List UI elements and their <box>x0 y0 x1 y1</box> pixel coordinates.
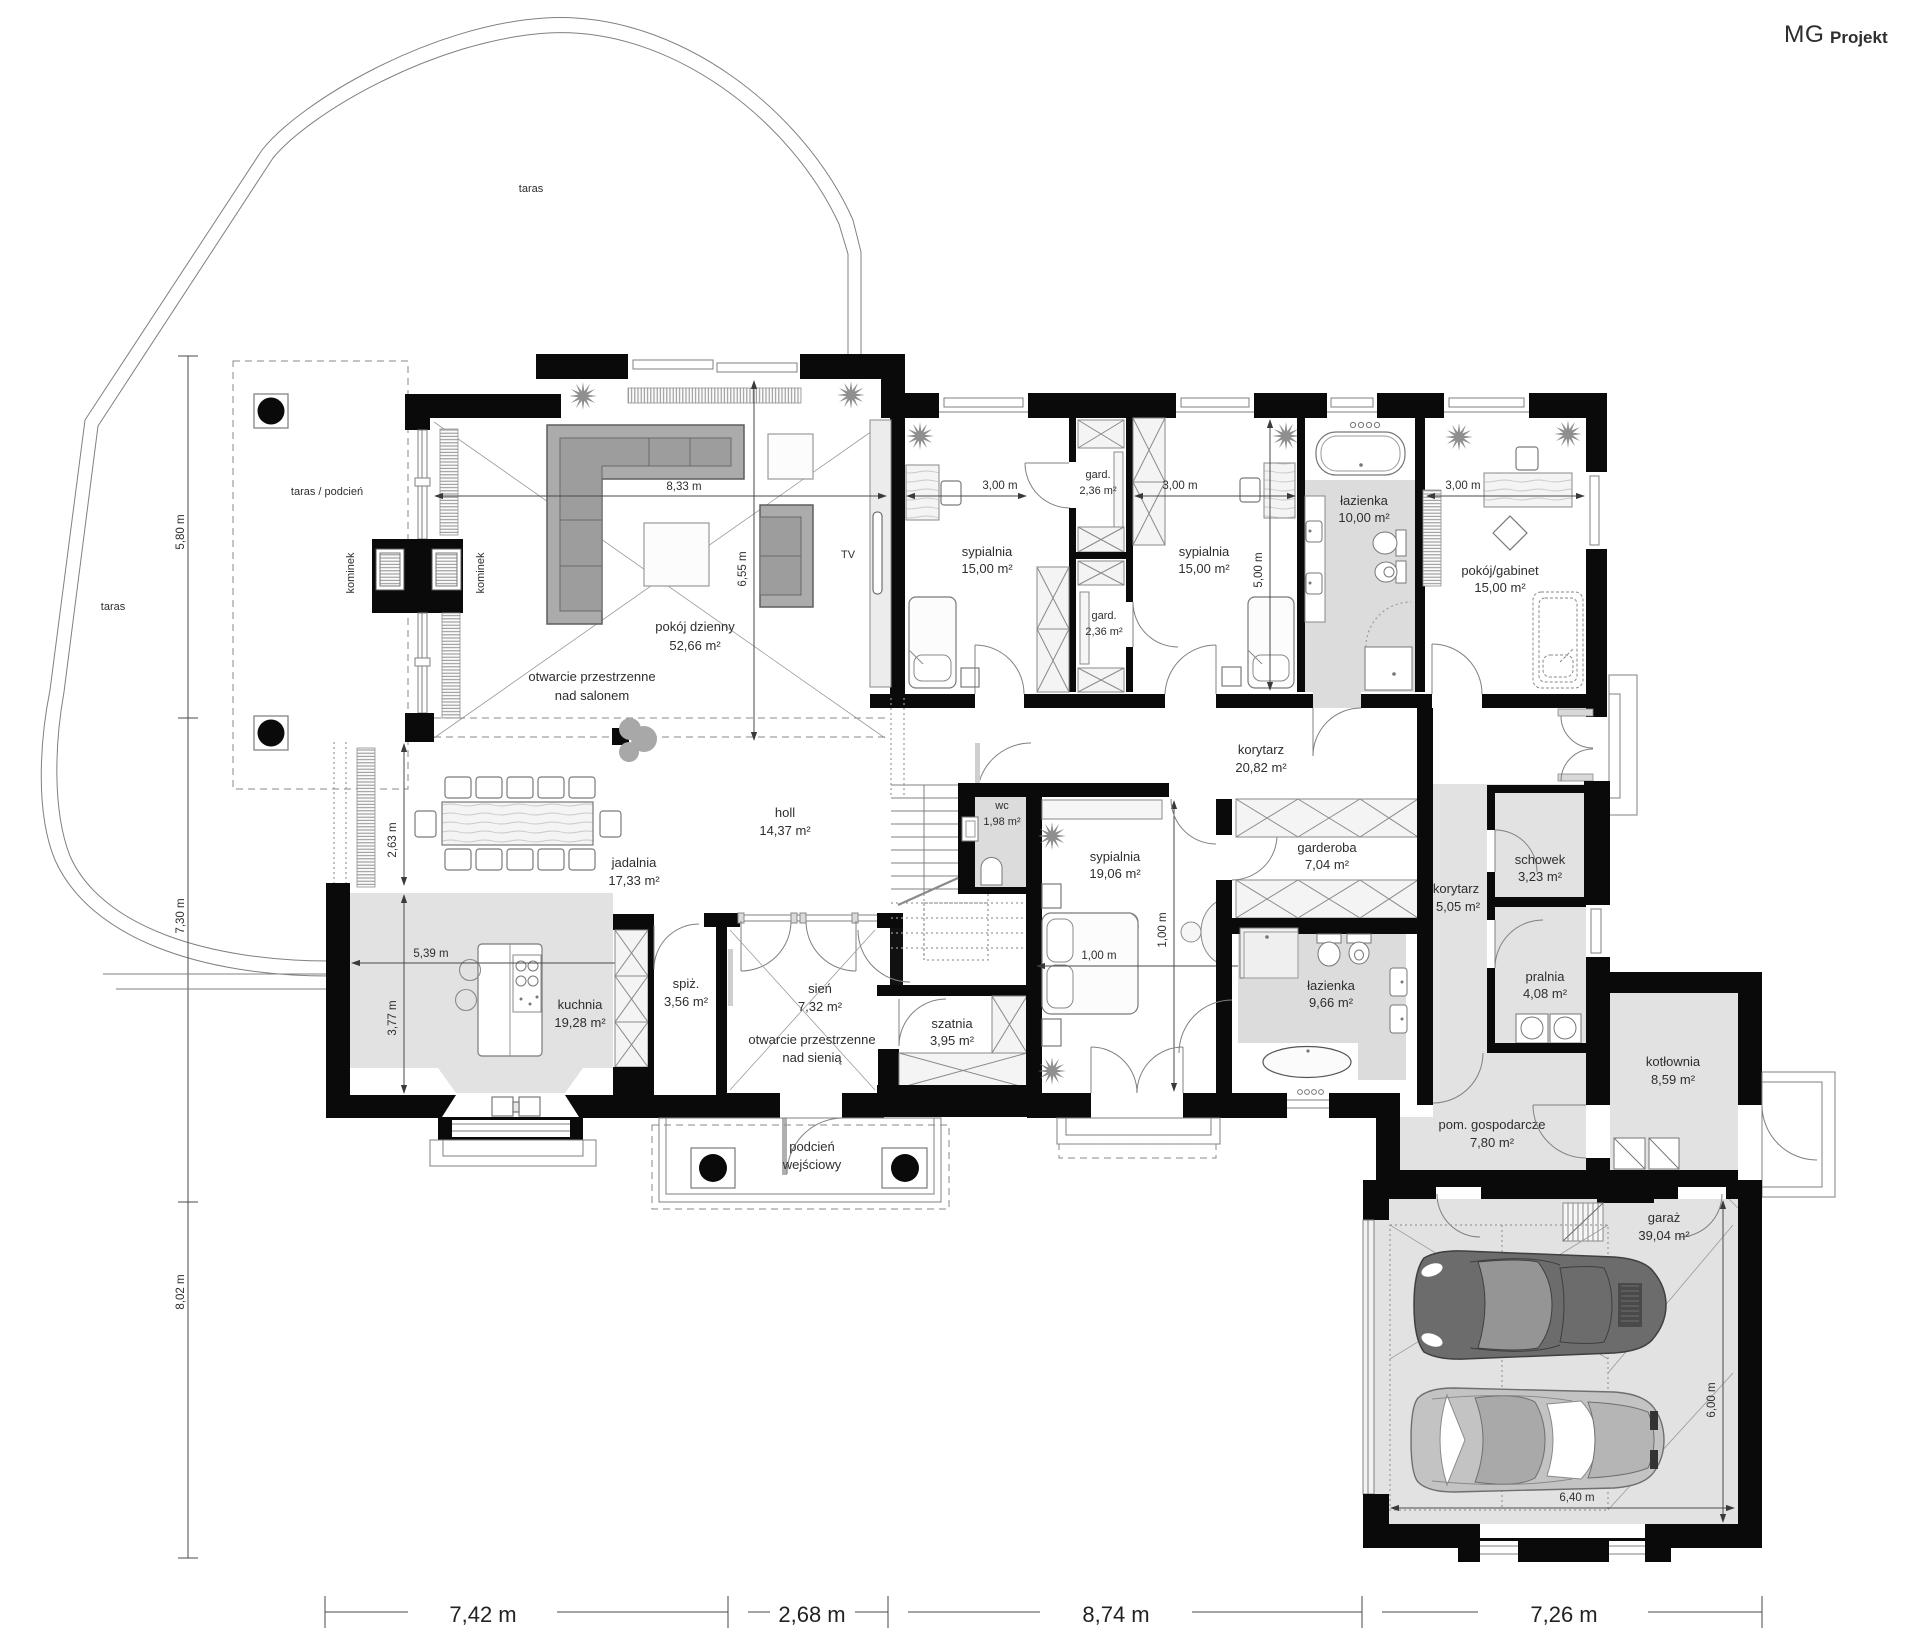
svg-text:taras: taras <box>101 601 126 613</box>
svg-text:pokój dzienny: pokój dzienny <box>655 619 735 634</box>
svg-text:1,00 m: 1,00 m <box>1157 912 1169 947</box>
svg-text:holl: holl <box>775 805 795 820</box>
svg-text:MG: MG <box>1784 21 1824 48</box>
svg-text:sypialnia: sypialnia <box>962 544 1013 559</box>
svg-text:8,02 m: 8,02 m <box>175 1274 187 1309</box>
svg-text:podcień: podcień <box>789 1139 835 1154</box>
svg-text:sypialnia: sypialnia <box>1090 849 1141 864</box>
svg-text:gard.: gard. <box>1085 469 1110 481</box>
svg-text:6,40 m: 6,40 m <box>1559 1492 1594 1504</box>
svg-text:jadalnia: jadalnia <box>611 855 658 870</box>
svg-text:15,00 m²: 15,00 m² <box>961 561 1013 576</box>
svg-text:15,00 m²: 15,00 m² <box>1474 580 1526 595</box>
svg-text:4,08 m²: 4,08 m² <box>1523 986 1568 1001</box>
svg-text:5,39 m: 5,39 m <box>413 948 448 960</box>
svg-text:8,33 m: 8,33 m <box>666 481 701 493</box>
svg-text:3,95 m²: 3,95 m² <box>930 1033 975 1048</box>
svg-text:20,82 m²: 20,82 m² <box>1235 760 1287 775</box>
svg-text:spiż.: spiż. <box>673 976 700 991</box>
svg-text:3,00 m: 3,00 m <box>982 480 1017 492</box>
svg-text:7,26 m: 7,26 m <box>1530 1602 1597 1627</box>
svg-text:taras: taras <box>519 183 544 195</box>
svg-text:3,00 m: 3,00 m <box>1162 480 1197 492</box>
svg-text:7,80 m²: 7,80 m² <box>1470 1135 1515 1150</box>
svg-text:2,68 m: 2,68 m <box>778 1602 845 1627</box>
svg-text:9,66 m²: 9,66 m² <box>1309 995 1354 1010</box>
svg-text:łazienka: łazienka <box>1307 978 1355 993</box>
svg-text:gard.: gard. <box>1091 610 1116 622</box>
svg-text:3,00 m: 3,00 m <box>1445 480 1480 492</box>
svg-text:schowek: schowek <box>1515 852 1566 867</box>
svg-text:kominek: kominek <box>345 552 357 593</box>
svg-text:kominek: kominek <box>475 552 487 593</box>
svg-text:6,55 m: 6,55 m <box>737 551 749 586</box>
svg-text:8,59 m²: 8,59 m² <box>1651 1072 1696 1087</box>
svg-text:3,77 m: 3,77 m <box>387 1000 399 1035</box>
svg-text:8,74 m: 8,74 m <box>1082 1602 1149 1627</box>
svg-text:5,80 m: 5,80 m <box>175 514 187 549</box>
svg-text:wc: wc <box>994 800 1009 812</box>
svg-text:szatnia: szatnia <box>931 1016 973 1031</box>
svg-text:kotłownia: kotłownia <box>1646 1054 1701 1069</box>
svg-text:1,00 m: 1,00 m <box>1081 950 1116 962</box>
svg-text:2,36 m²: 2,36 m² <box>1079 485 1117 497</box>
svg-text:14,37 m²: 14,37 m² <box>759 823 811 838</box>
svg-text:1,98 m²: 1,98 m² <box>983 816 1021 828</box>
svg-text:sień: sień <box>808 981 832 996</box>
svg-text:7,04 m²: 7,04 m² <box>1305 857 1350 872</box>
svg-text:pralnia: pralnia <box>1525 969 1565 984</box>
svg-text:39,04 m²: 39,04 m² <box>1638 1228 1690 1243</box>
svg-text:korytarz: korytarz <box>1238 742 1284 757</box>
svg-text:wejściowy: wejściowy <box>782 1157 842 1172</box>
svg-text:pokój/gabinet: pokój/gabinet <box>1461 563 1539 578</box>
svg-text:5,05 m²: 5,05 m² <box>1436 899 1481 914</box>
svg-text:3,23 m²: 3,23 m² <box>1518 869 1563 884</box>
svg-text:nad sienią: nad sienią <box>782 1050 842 1065</box>
svg-text:10,00 m²: 10,00 m² <box>1338 510 1390 525</box>
svg-text:19,06 m²: 19,06 m² <box>1089 866 1141 881</box>
svg-text:17,33 m²: 17,33 m² <box>608 873 660 888</box>
svg-text:3,56 m²: 3,56 m² <box>664 994 709 1009</box>
svg-text:otwarcie przestrzenne: otwarcie przestrzenne <box>528 669 655 684</box>
svg-text:52,66 m²: 52,66 m² <box>669 638 721 653</box>
svg-text:6,00 m: 6,00 m <box>1706 1382 1718 1417</box>
svg-text:taras / podcień: taras / podcień <box>291 486 363 498</box>
svg-text:garaż: garaż <box>1648 1210 1681 1225</box>
svg-text:2,63 m: 2,63 m <box>387 822 399 857</box>
svg-text:kuchnia: kuchnia <box>558 997 604 1012</box>
svg-text:sypialnia: sypialnia <box>1179 544 1230 559</box>
svg-text:garderoba: garderoba <box>1297 840 1357 855</box>
svg-text:korytarz: korytarz <box>1433 881 1479 896</box>
svg-text:Projekt: Projekt <box>1830 28 1888 47</box>
svg-text:otwarcie przestrzenne: otwarcie przestrzenne <box>748 1032 875 1047</box>
svg-text:łazienka: łazienka <box>1340 493 1388 508</box>
svg-text:7,42 m: 7,42 m <box>449 1602 516 1627</box>
svg-text:2,36 m²: 2,36 m² <box>1085 626 1123 638</box>
svg-text:19,28 m²: 19,28 m² <box>554 1015 606 1030</box>
svg-text:15,00 m²: 15,00 m² <box>1178 561 1230 576</box>
svg-text:5,00 m: 5,00 m <box>1253 552 1265 587</box>
svg-text:pom. gospodarcze: pom. gospodarcze <box>1439 1117 1546 1132</box>
svg-text:TV: TV <box>841 549 856 561</box>
svg-text:nad salonem: nad salonem <box>555 688 629 703</box>
svg-text:7,30 m: 7,30 m <box>175 898 187 933</box>
svg-text:7,32 m²: 7,32 m² <box>798 999 843 1014</box>
